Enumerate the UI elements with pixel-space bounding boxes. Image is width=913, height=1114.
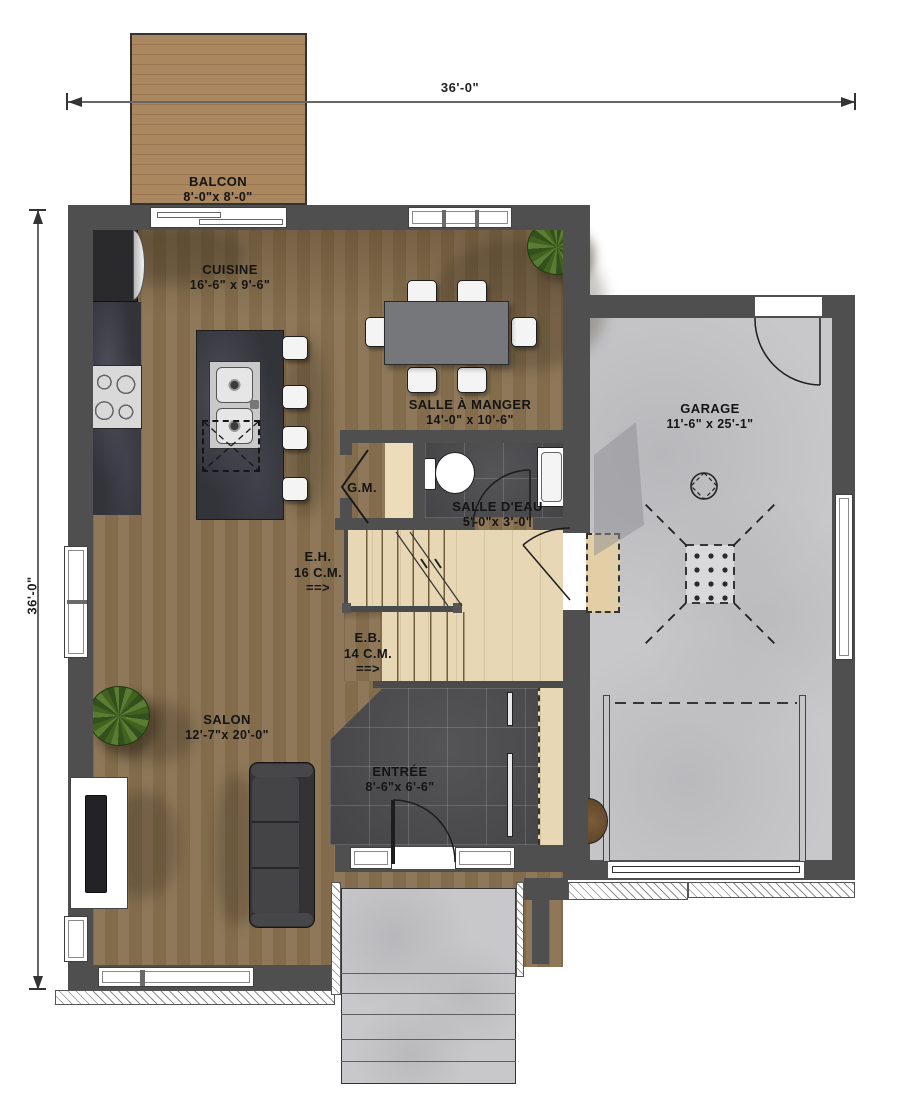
stove — [86, 365, 142, 429]
window-mullion — [442, 210, 446, 227]
stair-bottom-edge — [373, 681, 563, 688]
porch-step-line — [341, 993, 516, 994]
salle-deau-name: SALLE D'EAU — [420, 499, 575, 515]
toilet-bowl — [435, 452, 475, 494]
foundation-hatch — [55, 990, 335, 1005]
sofa-armrest-top — [251, 764, 313, 777]
closet-door-panel — [507, 692, 513, 726]
vanity-basin — [541, 452, 562, 502]
window-pane — [102, 971, 250, 983]
room-label-garage: GARAGE 11'-6" x 25'-1" — [610, 401, 810, 432]
window-pane — [68, 920, 84, 958]
front-door-slab — [391, 800, 395, 864]
salon-name: SALON — [137, 712, 317, 728]
tv-screen — [85, 795, 107, 893]
room-label-salle-deau: SALLE D'EAU 5'-0"x 3'-0" — [420, 499, 575, 530]
garage-service-door-opening — [755, 297, 822, 316]
stair-up-arrow: ==> — [278, 580, 358, 596]
stair-down-arrow: ==> — [328, 661, 408, 677]
room-label-salle-a-manger: SALLE À MANGER 14'-0" x 10'-6" — [360, 397, 580, 428]
patio-door — [150, 207, 287, 228]
salon-size: 12'-7"x 20'-0" — [137, 728, 317, 743]
entree-size: 8'-6"x 6'-6" — [320, 780, 480, 795]
garage-right-window — [835, 494, 853, 660]
room-label-gm: G.M. — [336, 480, 388, 496]
foundation-hatch — [516, 882, 524, 977]
garage-entry-step — [586, 533, 620, 613]
room-label-entree: ENTRÉE 8'-6"x 6'-6" — [320, 764, 480, 795]
window-mullion — [140, 970, 145, 986]
window-pane — [412, 211, 508, 224]
room-label-balcon: BALCON 8'-0"x 8'-0" — [138, 174, 298, 205]
salle-a-manger-name: SALLE À MANGER — [360, 397, 580, 413]
garage-door-rail-left — [603, 695, 610, 862]
room-label-cuisine: CUISINE 16'-6" x 9'-6" — [140, 262, 320, 293]
salon-left-window-large — [64, 546, 88, 658]
window-mullion — [67, 600, 87, 604]
room-label-salon: SALON 12'-7"x 20'-0" — [137, 712, 317, 743]
wall-pantry-stub-bottom — [340, 498, 352, 520]
sink-faucet — [250, 400, 259, 409]
salle-deau-size: 5'-0"x 3'-0" — [420, 515, 575, 530]
wall-pantry-top — [340, 430, 563, 443]
window-pane — [354, 851, 388, 865]
dining-chair — [511, 317, 537, 347]
porch-step-line — [341, 973, 516, 974]
garage-name: GARAGE — [610, 401, 810, 417]
dishwasher-dashed — [202, 420, 260, 472]
dining-table — [384, 301, 509, 365]
window-mullion — [475, 210, 479, 227]
foundation-hatch — [568, 882, 688, 900]
porch-step-line — [341, 1061, 516, 1062]
entry-closet-floor — [538, 685, 563, 845]
stair-label-down: E.B. 14 C.M. ==> — [328, 630, 408, 677]
patio-door-panel — [157, 212, 221, 218]
gm-name: G.M. — [336, 480, 388, 496]
window-pane — [839, 498, 849, 656]
entry-sidelight-right — [455, 847, 515, 869]
foundation-pier-stem — [532, 878, 549, 964]
stair-post-left — [342, 603, 351, 613]
sofa-armrest-bottom — [251, 913, 313, 926]
front-door-opening — [392, 847, 455, 869]
garage-floor — [590, 318, 832, 862]
stair-post-right — [453, 603, 462, 613]
stair-upper-flight — [352, 530, 456, 608]
dimension-left-label: 36'-0" — [25, 546, 40, 646]
salle-a-manger-size: 14'-0" x 10'-6" — [360, 413, 580, 428]
stair-down-abbr: E.B. — [328, 630, 408, 646]
balcon-size: 8'-0"x 8'-0" — [138, 190, 298, 205]
bar-stool — [282, 477, 308, 501]
stair-up-risers: 16 C.M. — [278, 565, 358, 581]
front-porch — [341, 888, 516, 1084]
stair-up-abbr: E.H. — [278, 549, 358, 565]
cuisine-size: 16'-6" x 9'-6" — [140, 278, 320, 293]
dimension-left-tick-bottom — [29, 988, 46, 990]
bar-stool — [282, 336, 308, 360]
foundation-hatch — [331, 882, 341, 995]
dimension-top-tick-left — [66, 93, 68, 110]
dimension-top-tick-right — [854, 93, 856, 110]
dining-chair — [457, 367, 487, 393]
porch-step-line — [341, 1039, 516, 1040]
salon-left-window-small — [64, 916, 88, 962]
garage-size: 11'-6" x 25'-1" — [610, 417, 810, 432]
window-pane — [459, 851, 511, 865]
cuisine-name: CUISINE — [140, 262, 320, 278]
entree-name: ENTRÉE — [320, 764, 480, 780]
entry-sidelight-left — [350, 847, 392, 869]
stair-label-up: E.H. 16 C.M. ==> — [278, 549, 358, 596]
dining-chair — [407, 367, 437, 393]
bar-stool — [282, 426, 308, 450]
wall-pantry-stub-top — [340, 430, 352, 455]
patio-door-panel — [199, 219, 283, 225]
bar-stool — [282, 385, 308, 409]
porch-step-line — [341, 1014, 516, 1015]
stair-down-risers: 14 C.M. — [328, 646, 408, 662]
closet-door-panel — [507, 753, 513, 837]
garage-door-rail-right — [799, 695, 806, 862]
dimension-top-line — [68, 101, 855, 103]
floor-plan: 36'-0" 36'-0" BALCON 8'-0"x 8'-0" CUISIN… — [0, 0, 913, 1114]
balcon-name: BALCON — [138, 174, 298, 190]
stair-rail-mid — [344, 606, 462, 612]
foundation-hatch — [688, 882, 855, 898]
dimension-left-tick-top — [29, 209, 46, 211]
garage-door-slab — [612, 866, 800, 873]
dimension-top-label: 36'-0" — [380, 80, 540, 95]
pantry-floor — [385, 443, 413, 518]
sink-basin-top — [216, 367, 253, 403]
sofa — [249, 762, 315, 928]
dining-window — [408, 207, 512, 228]
salon-bottom-window — [98, 967, 254, 987]
sofa-seat — [252, 777, 299, 915]
